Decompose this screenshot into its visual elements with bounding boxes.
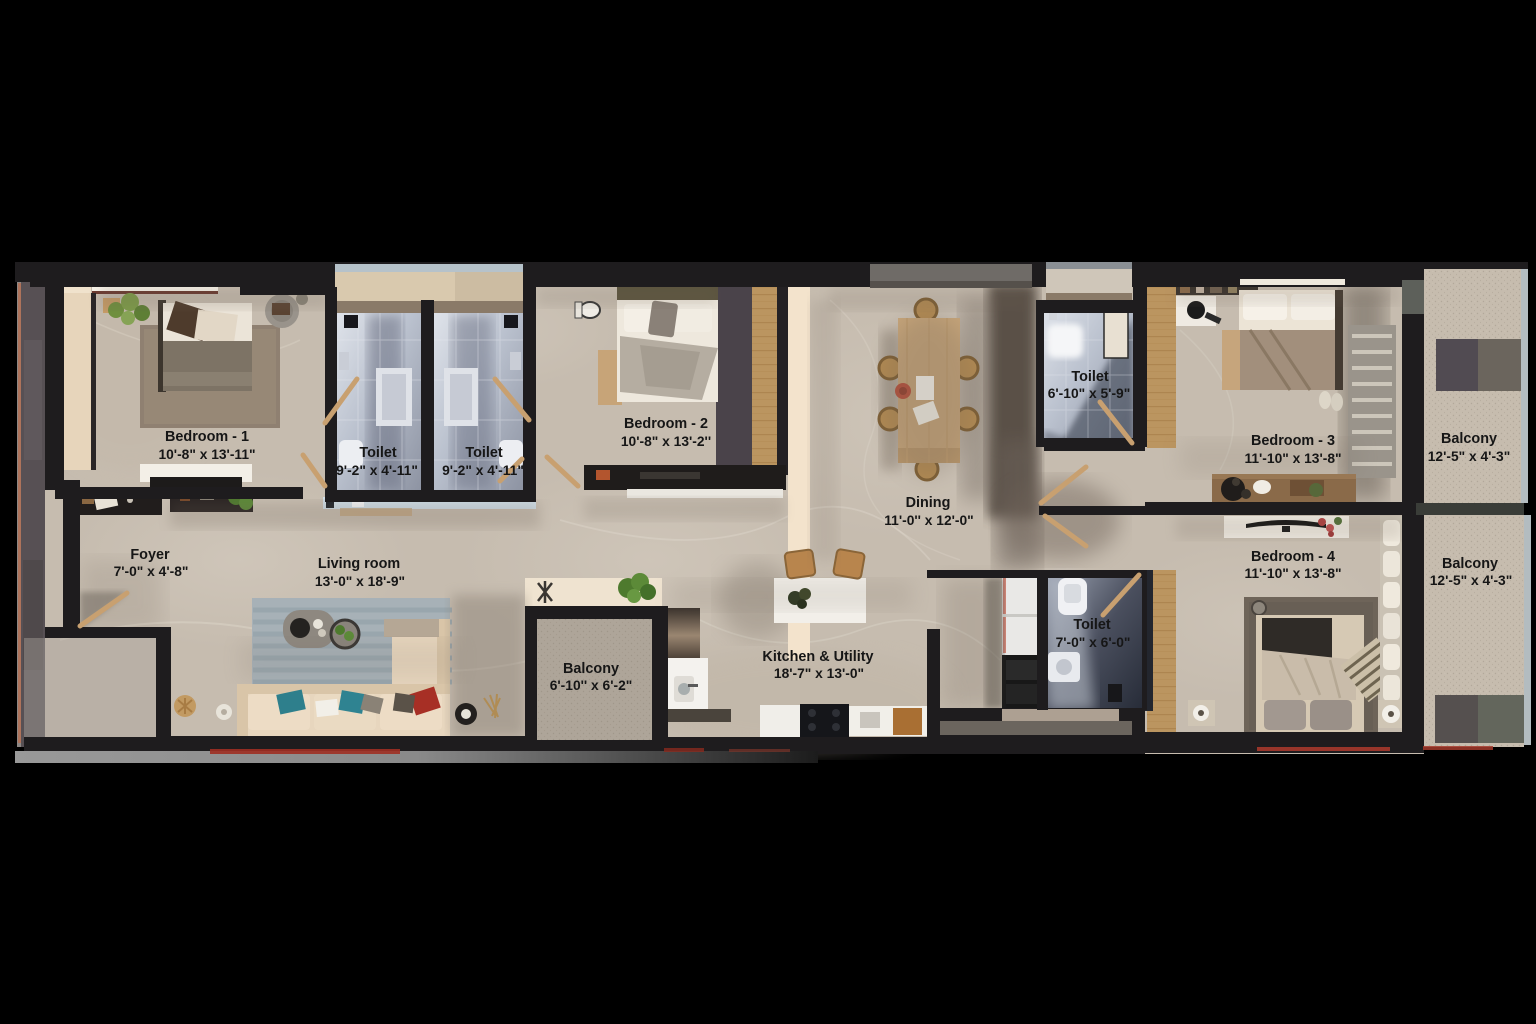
- svg-text:10'-8" x 13'-11": 10'-8" x 13'-11": [158, 447, 255, 462]
- svg-text:Balcony: Balcony: [1441, 431, 1497, 447]
- svg-text:Kitchen & Utility: Kitchen & Utility: [762, 649, 873, 665]
- svg-text:6'-10'' x 6'-2": 6'-10'' x 6'-2": [550, 678, 633, 693]
- svg-text:Bedroom - 2: Bedroom - 2: [624, 416, 708, 432]
- svg-text:9'-2" x 4'-11": 9'-2" x 4'-11": [336, 463, 418, 478]
- svg-text:Dining: Dining: [906, 495, 951, 511]
- svg-text:Bedroom - 4: Bedroom - 4: [1251, 549, 1335, 565]
- svg-text:Toilet: Toilet: [465, 445, 503, 461]
- svg-text:Toilet: Toilet: [1073, 617, 1111, 633]
- svg-text:13'-0" x 18'-9": 13'-0" x 18'-9": [315, 574, 405, 589]
- svg-text:11'-10" x 13'-8": 11'-10" x 13'-8": [1244, 451, 1341, 466]
- svg-text:Bedroom - 3: Bedroom - 3: [1251, 433, 1335, 449]
- svg-text:Balcony: Balcony: [563, 661, 619, 677]
- svg-text:18'-7" x 13'-0": 18'-7" x 13'-0": [774, 666, 864, 681]
- svg-text:Toilet: Toilet: [359, 445, 397, 461]
- svg-text:9'-2" x 4'-11": 9'-2" x 4'-11": [442, 463, 524, 478]
- svg-text:6'-10" x 5'-9": 6'-10" x 5'-9": [1048, 386, 1131, 401]
- svg-text:Toilet: Toilet: [1071, 369, 1109, 385]
- svg-text:7'-0" x 6'-0": 7'-0" x 6'-0": [1056, 635, 1131, 650]
- svg-text:Living room: Living room: [318, 556, 400, 572]
- svg-text:10'-8" x 13'-2'': 10'-8" x 13'-2'': [621, 434, 711, 449]
- svg-text:11'-0'' x 12'-0": 11'-0'' x 12'-0": [884, 513, 973, 528]
- svg-text:7'-0" x 4'-8": 7'-0" x 4'-8": [114, 564, 189, 579]
- svg-text:Balcony: Balcony: [1442, 556, 1498, 572]
- svg-text:12'-5" x 4'-3": 12'-5" x 4'-3": [1430, 573, 1513, 588]
- svg-text:Bedroom - 1: Bedroom - 1: [165, 429, 249, 445]
- svg-text:11'-10" x 13'-8": 11'-10" x 13'-8": [1244, 566, 1341, 581]
- svg-text:12'-5" x 4'-3": 12'-5" x 4'-3": [1428, 449, 1511, 464]
- svg-text:Foyer: Foyer: [130, 547, 170, 563]
